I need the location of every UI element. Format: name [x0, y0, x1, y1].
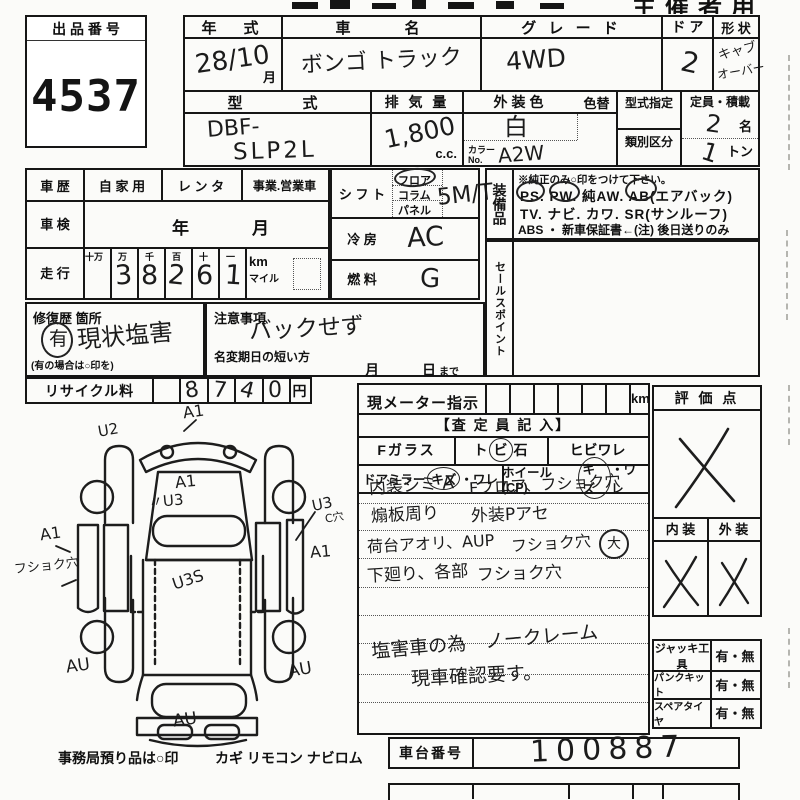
diagram-mark-bottom-right: AU — [287, 660, 314, 681]
capacity-load-value: 1 — [699, 138, 722, 167]
diagram-mark-cab-lower: 〃U3 — [147, 492, 184, 510]
fuel-value: G — [420, 266, 441, 293]
tool-puncture-kit-label: パンクキット — [654, 670, 710, 698]
grade-box: グ レ ー ド 4WD — [480, 15, 663, 92]
sales-point-label: セールスポイント — [487, 242, 514, 375]
assessor-panel: 現メーター指示 km 【査 定 員 記 入】 Fガラス トビ石 ヒビワレ ドアミ… — [357, 383, 650, 735]
tool-jack-label: ジャッキ工具 — [654, 641, 710, 670]
deposit-note-label: 事務局預り品は○印 — [58, 748, 178, 768]
tools-panel: ジャッキ工具 有・無 パンクキット 有・無 スペアタイヤ 有・無 — [652, 639, 762, 729]
chassis-label: 車台番号 — [390, 739, 474, 767]
capacity-persons-value: 2 — [704, 111, 722, 137]
evaluation-panel: 評 価 点 内 装 外 装 — [652, 385, 762, 617]
meter-label: 現メーター指示 — [367, 392, 479, 413]
evaluation-score-x-mark — [662, 417, 752, 517]
equipment-label: 装備品 — [487, 170, 514, 238]
shift-opt-panel: パネル — [398, 202, 431, 218]
note-3-left: 荷台アオリ、AUP — [367, 533, 495, 556]
cutoff-bottom-row — [388, 783, 740, 800]
capacity-label: 定員・積載 — [682, 92, 758, 110]
exterior-color-box: 外装色 色替 白 カラーNo. A2W — [462, 90, 618, 167]
note-2-left: 煽板周り — [371, 505, 440, 526]
interior-x-mark — [658, 547, 704, 613]
type-designation-label: 型式指定 — [618, 92, 680, 112]
assessor-header: 【査 定 員 記 入】 — [359, 413, 648, 436]
color-value: 白 — [504, 115, 528, 139]
color-change-label: 色替 — [577, 92, 616, 114]
tool-puncture-kit-value: 有・無 — [710, 670, 760, 698]
glass-label: Fガラス — [359, 436, 454, 464]
grade-value: 4WD — [505, 45, 566, 74]
class-label: 類別区分 — [618, 132, 680, 150]
evaluation-header: 評 価 点 — [654, 387, 760, 411]
tool-jack-value: 有・無 — [710, 641, 760, 670]
interior-label: 内 装 — [654, 517, 707, 540]
tool-spare-tire-value: 有・無 — [710, 698, 760, 727]
stone-circled: ビ — [489, 438, 513, 462]
auction-sheet: 主催者用 出 品 番 号 4537 年 式 28/10 月 車 名 ボンゴ トラ… — [0, 0, 800, 800]
note-3-right: フショク穴 — [511, 533, 592, 555]
color-no-value: A2W — [497, 142, 544, 165]
note-4-right: フショク穴 — [477, 565, 563, 585]
grade-label: グ レ ー ド — [482, 17, 661, 39]
exterior-x-mark — [714, 549, 754, 611]
cooling-value: AC — [406, 223, 444, 252]
displacement-box: 排 気 量 1,800 c.c. — [370, 90, 464, 167]
note-2-right: 外装Pアセ — [471, 506, 549, 526]
shape-value-1: キャブ — [717, 40, 758, 62]
organizer-label: 主催者用 — [628, 0, 778, 14]
capacity-box: 定員・積載 2 名 1 トン — [680, 90, 760, 167]
capacity-persons-unit: 名 — [739, 116, 752, 135]
color-no-label: カラーNo. — [468, 146, 496, 166]
note-3-circled-large: 大 — [599, 529, 629, 559]
equipment-line2: TV. ナビ. カワ. SR(サンルーフ) — [520, 203, 728, 223]
stone-chip-label: トビ石 — [454, 436, 547, 464]
page-edge-mark-4 — [788, 628, 790, 688]
shift-table: シ フ ト 冷 房 燃 料 フロア コラム パネル 5M/T AC G — [330, 168, 480, 300]
shape-value-2: オーバー — [716, 61, 765, 81]
name-change-month: 月 — [365, 360, 379, 380]
diagram-mark-bottom-left: AU — [65, 656, 91, 676]
shape-box: 形 状 キャブ オーバー — [712, 15, 760, 92]
meter-cells — [485, 385, 648, 413]
deposit-note-items: カギ リモコン ナビロム — [215, 748, 363, 768]
color-label: 外装色 — [464, 92, 577, 114]
diagram-mark-right-mid: A1 — [309, 543, 331, 561]
diagram-mark-bottom-center: AU — [172, 710, 198, 730]
displacement-unit: c.c. — [435, 146, 457, 161]
page-edge-mark-1 — [788, 55, 790, 170]
chassis-box: 車台番号 100887 — [388, 737, 740, 769]
page-edge-mark-2 — [786, 230, 788, 320]
door-box: ド ア 2 — [661, 15, 714, 92]
exterior-label: 外 装 — [707, 517, 760, 540]
stone-post: 石 — [514, 440, 528, 460]
diagram-mark-left-upper: A1 — [39, 525, 62, 544]
page-edge-mark-3 — [788, 385, 790, 445]
shape-label: 形 状 — [714, 17, 758, 39]
door-label: ド ア — [663, 17, 712, 39]
diagram-mark-right-upper-sub: C穴 — [324, 510, 344, 524]
note-4-left: 下廻り、各部 — [367, 563, 469, 585]
remark-1: 塩害車の為 ノークレーム — [371, 623, 599, 662]
remark-2: 現車確認要す。 — [411, 664, 543, 690]
diagram-mark-top: A1 — [182, 403, 205, 422]
chassis-value: 100887 — [530, 732, 687, 767]
name-change-day: 日 — [422, 360, 436, 380]
note-1-left: 内装シミ A — [369, 475, 455, 498]
door-value: 2 — [678, 47, 701, 78]
vehicle-diagram: A1 U2 A1 〃U3 U3 C穴 A1 フショク穴 A1 U3S AU AU… — [0, 0, 350, 800]
type-designation-box: 型式指定 類別区分 — [616, 90, 682, 167]
meter-unit: km — [631, 391, 650, 406]
sales-point-box: セールスポイント — [485, 240, 760, 377]
diagram-mark-cab: A1 — [174, 473, 197, 491]
tool-spare-tire-label: スペアタイヤ — [654, 698, 710, 727]
equipment-box: 装備品 ※純正のみ○印をつけて下さい。 PS. PW. 純AW. AB(エアバッ… — [485, 168, 760, 240]
diagram-mark-top-left: U2 — [97, 421, 120, 439]
capacity-load-unit: トン — [727, 141, 753, 160]
equipment-line3: ABS ・ 新車保証書←(注) 後日送りのみ — [518, 221, 729, 238]
stone-pre: ト — [474, 440, 488, 460]
name-change-until: まで — [439, 363, 459, 378]
